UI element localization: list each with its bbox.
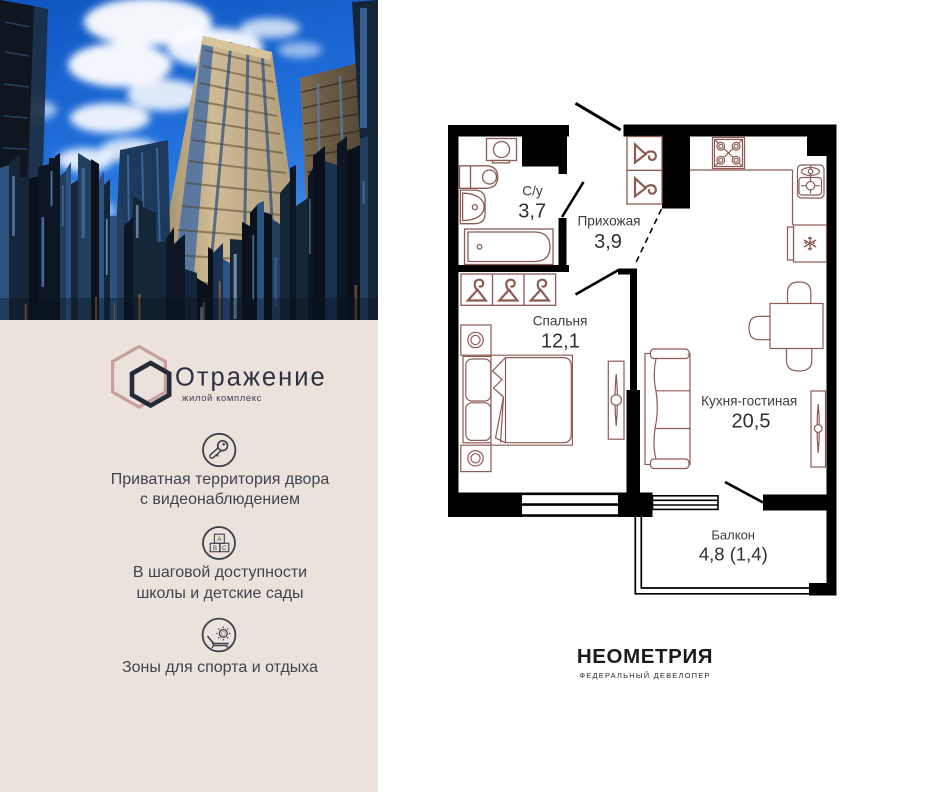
svg-text:20,5: 20,5 bbox=[732, 411, 771, 433]
svg-text:жилой комплекс: жилой комплекс bbox=[182, 393, 262, 404]
svg-text:3,7: 3,7 bbox=[518, 201, 546, 223]
svg-text:C: C bbox=[222, 545, 227, 552]
svg-text:4,8 (1,4): 4,8 (1,4) bbox=[699, 544, 768, 565]
svg-text:B: B bbox=[213, 545, 217, 552]
svg-text:Отражение: Отражение bbox=[175, 364, 327, 392]
svg-text:A: A bbox=[217, 536, 222, 543]
svg-text:3,9: 3,9 bbox=[594, 231, 622, 253]
svg-text:12,1: 12,1 bbox=[541, 331, 580, 353]
svg-text:Балкон: Балкон bbox=[711, 528, 755, 543]
svg-text:Спальня: Спальня bbox=[533, 314, 588, 329]
svg-text:Прихожая: Прихожая bbox=[578, 214, 641, 229]
svg-text:С/у: С/у bbox=[522, 184, 543, 199]
svg-text:Кухня-гостиная: Кухня-гостиная bbox=[701, 394, 797, 409]
